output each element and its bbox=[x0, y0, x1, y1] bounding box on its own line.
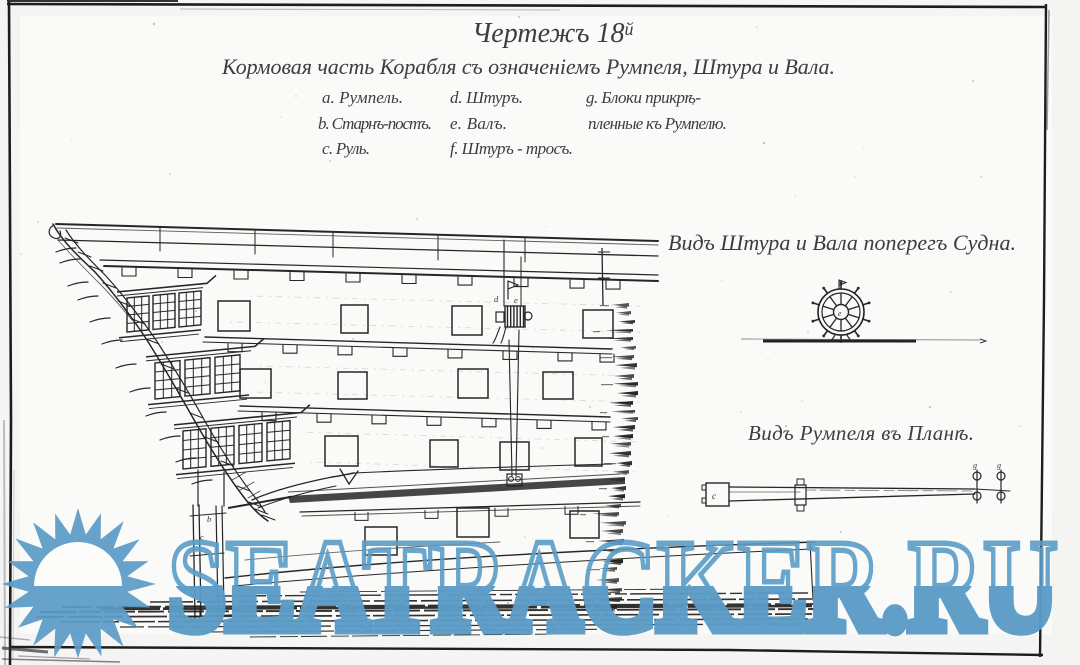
svg-text:e. Валъ.: e. Валъ. bbox=[450, 114, 507, 133]
svg-text:g: g bbox=[973, 461, 977, 470]
svg-text:c: c bbox=[712, 492, 717, 502]
svg-text:d. Штуръ.: d. Штуръ. bbox=[450, 88, 523, 107]
svg-text:пленные къ Румпелю.: пленные къ Румпелю. bbox=[588, 114, 727, 133]
svg-text:Видъ Румпеля въ Планѣ.: Видъ Румпеля въ Планѣ. bbox=[748, 421, 974, 445]
svg-text:c. Руль.: c. Руль. bbox=[322, 139, 370, 158]
svg-text:f. Штуръ - тросъ.: f. Штуръ - тросъ. bbox=[450, 139, 573, 158]
svg-text:a. Румпель.: a. Румпель. bbox=[322, 88, 403, 107]
svg-text:Чертежъ 18й: Чертежъ 18й bbox=[472, 18, 634, 49]
svg-text:e: e bbox=[514, 295, 518, 305]
svg-text:b. Старнъ-постъ.: b. Старнъ-постъ. bbox=[318, 114, 432, 133]
svg-text:Кормовая часть Корабля съ озна: Кормовая часть Корабля съ означеніемъ Ру… bbox=[221, 54, 835, 79]
svg-text:e: e bbox=[838, 309, 842, 318]
svg-text:g. Блоки прикрѣ-: g. Блоки прикрѣ- bbox=[586, 88, 701, 107]
svg-text:g: g bbox=[997, 461, 1001, 470]
svg-text:Видъ Штура и Вала поперегъ Суд: Видъ Штура и Вала поперегъ Судна. bbox=[668, 230, 1016, 255]
